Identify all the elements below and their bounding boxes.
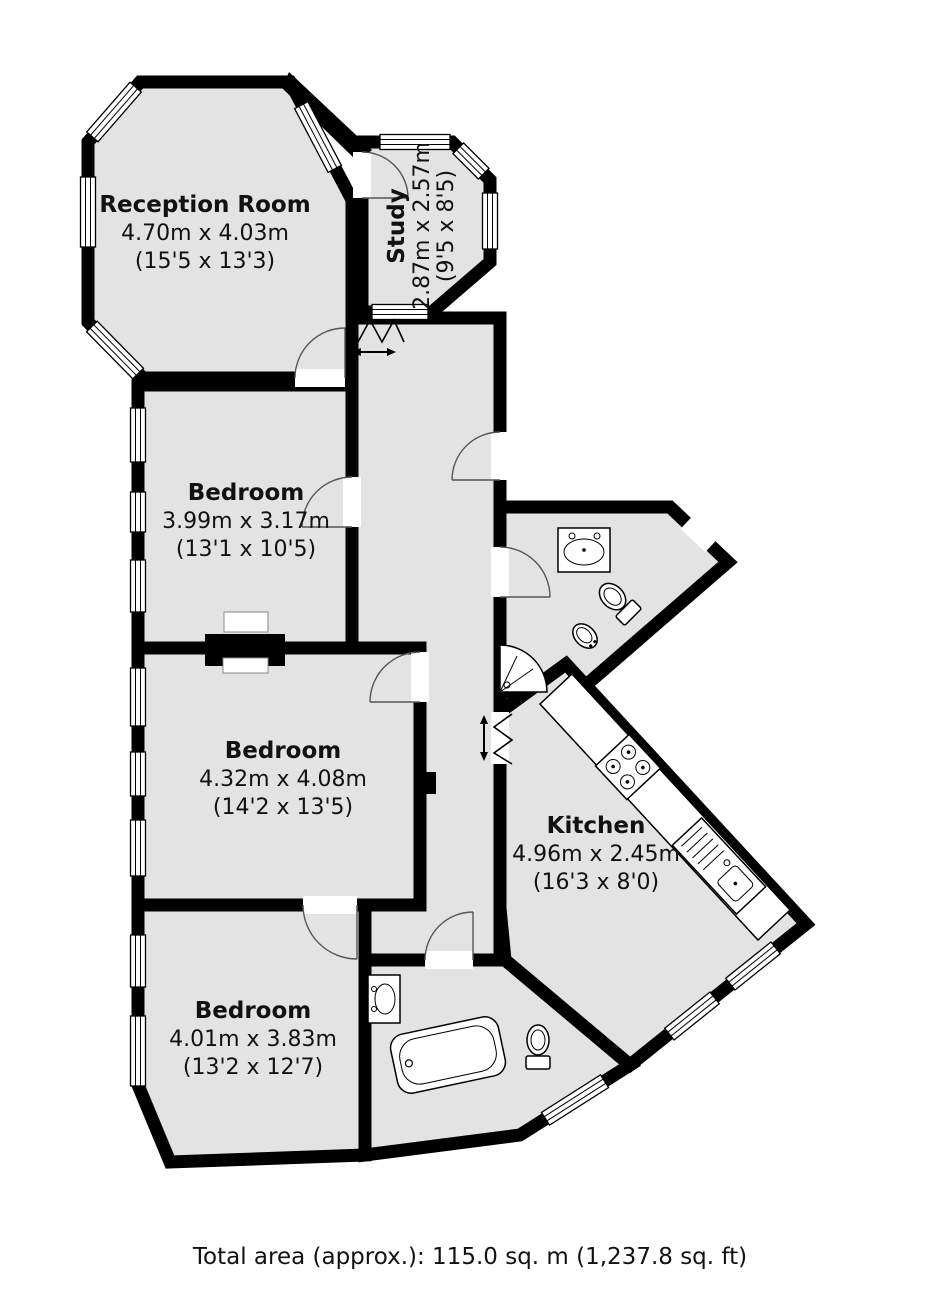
window — [131, 820, 146, 876]
door-gap — [491, 432, 509, 480]
window — [131, 668, 146, 726]
window — [131, 408, 146, 462]
window — [81, 177, 96, 247]
room-name: Study — [384, 188, 410, 263]
wall-stub — [414, 772, 436, 794]
floorplan-svg: Reception Room 4.70m x 4.03m (15'5 x 13'… — [0, 0, 940, 1302]
room-size-metric: 2.87m x 2.57m — [410, 142, 435, 310]
room-name: Bedroom — [225, 738, 342, 764]
room-size-metric: 4.96m x 2.45m — [512, 842, 680, 867]
door-gap — [303, 896, 357, 914]
room-size-metric: 4.01m x 3.83m — [169, 1027, 337, 1052]
window — [131, 935, 146, 987]
fireplace — [223, 658, 268, 673]
window — [131, 1016, 146, 1086]
room-size-imperial: (14'2 x 13'5) — [213, 795, 353, 820]
basin-icon — [368, 975, 400, 1023]
door-gap — [425, 951, 473, 969]
room-size-metric: 3.99m x 3.17m — [162, 509, 330, 534]
window — [131, 752, 146, 796]
room-name: Reception Room — [99, 192, 310, 218]
floorplan-page: Reception Room 4.70m x 4.03m (15'5 x 13'… — [0, 0, 940, 1302]
room-size-imperial: (13'2 x 12'7) — [183, 1055, 323, 1080]
room-size-metric: 4.32m x 4.08m — [199, 767, 367, 792]
door-gap — [491, 547, 509, 597]
room-size-imperial: (16'3 x 8'0) — [533, 870, 659, 895]
basin-icon — [558, 528, 610, 572]
room-size-imperial: (13'1 x 10'5) — [176, 537, 316, 562]
room-size-imperial: (9'5 x 8'5) — [434, 170, 459, 282]
room-name: Bedroom — [188, 480, 305, 506]
hearth — [224, 612, 268, 632]
window — [131, 492, 146, 532]
window — [131, 560, 146, 612]
door-gap — [295, 369, 345, 387]
door-gap — [411, 652, 429, 702]
window — [483, 193, 498, 249]
toilet-icon — [526, 1025, 550, 1069]
room-name: Kitchen — [547, 813, 646, 839]
room-size-imperial: (15'5 x 13'3) — [135, 249, 275, 274]
total-area-text: Total area (approx.): 115.0 sq. m (1,237… — [192, 1244, 747, 1270]
room-name: Bedroom — [195, 998, 312, 1024]
door-gap — [343, 477, 361, 527]
door-gap — [353, 152, 371, 198]
room-size-metric: 4.70m x 4.03m — [121, 221, 289, 246]
